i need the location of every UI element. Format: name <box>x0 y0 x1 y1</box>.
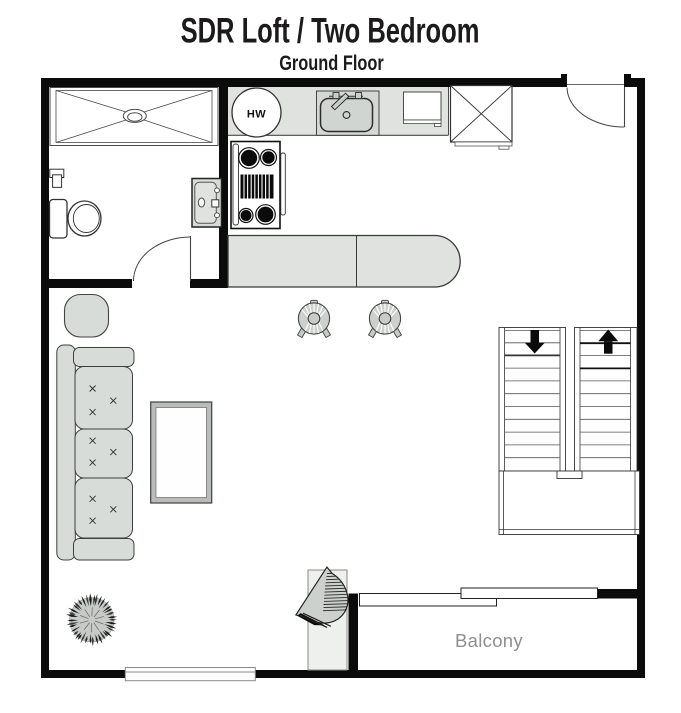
svg-text:Ground Floor: Ground Floor <box>279 51 384 74</box>
svg-text:HW: HW <box>247 109 266 121</box>
svg-text:SDR Loft / Two Bedroom: SDR Loft / Two Bedroom <box>181 12 480 51</box>
svg-text:Balcony: Balcony <box>455 630 523 651</box>
